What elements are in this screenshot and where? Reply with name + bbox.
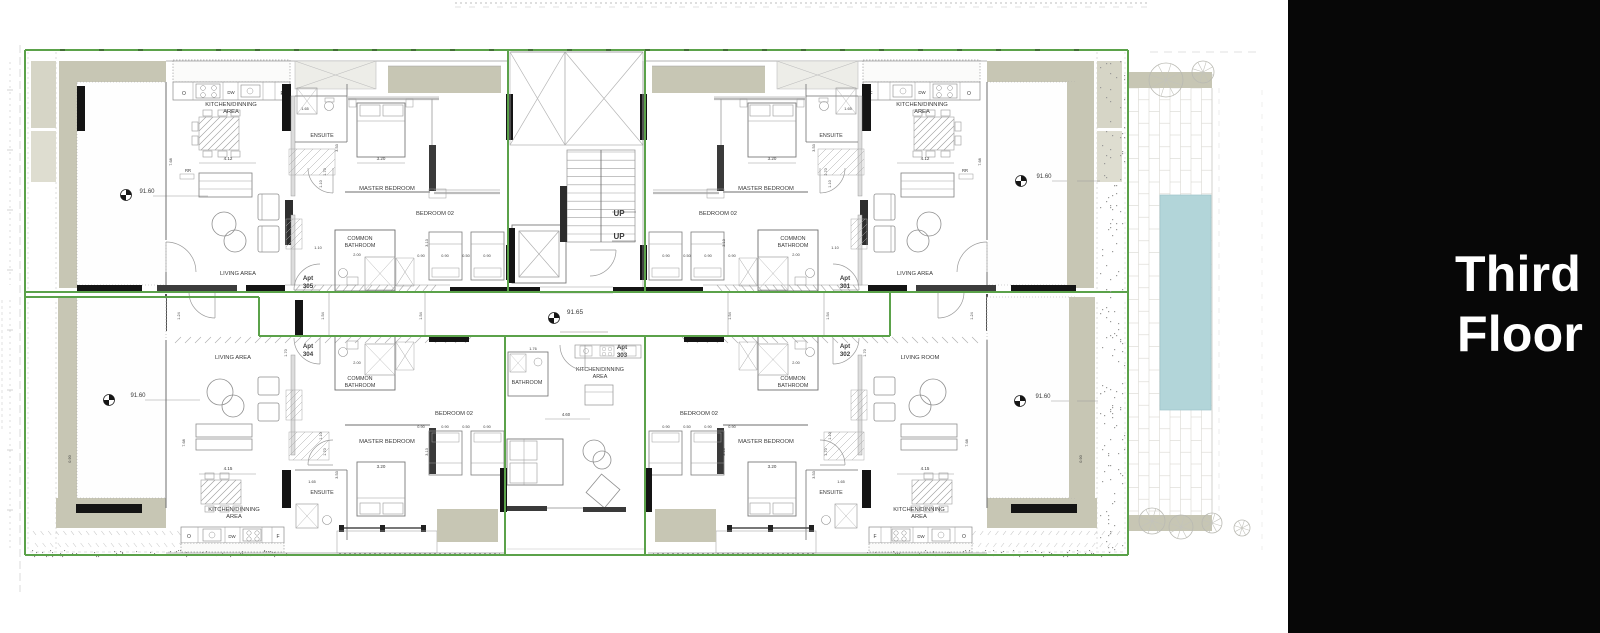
svg-text:COMMON: COMMON <box>780 376 805 382</box>
svg-text:BEDROOM 02: BEDROOM 02 <box>699 211 737 217</box>
svg-text:3.53: 3.53 <box>812 144 816 151</box>
svg-text:1.65: 1.65 <box>308 480 315 484</box>
svg-text:BEDROOM 02: BEDROOM 02 <box>435 411 473 417</box>
svg-text:RR: RR <box>962 168 968 173</box>
svg-text:91.60: 91.60 <box>1035 394 1051 400</box>
svg-text:4.12: 4.12 <box>921 156 930 161</box>
svg-text:KITCHEN/DINNING: KITCHEN/DINNING <box>893 507 945 513</box>
svg-text:4.12: 4.12 <box>224 156 233 161</box>
svg-text:3.53: 3.53 <box>335 144 339 151</box>
svg-text:1.10: 1.10 <box>319 432 323 439</box>
svg-text:ENSUITE: ENSUITE <box>819 133 843 139</box>
svg-text:1.54: 1.54 <box>321 312 325 319</box>
svg-text:BATHROOM: BATHROOM <box>778 243 809 249</box>
svg-text:Apt: Apt <box>840 343 850 350</box>
svg-text:304: 304 <box>303 351 314 358</box>
svg-text:0.50: 0.50 <box>462 254 469 258</box>
svg-text:ENSUITE: ENSUITE <box>310 133 334 139</box>
svg-text:301: 301 <box>840 283 851 290</box>
svg-text:BEDROOM 02: BEDROOM 02 <box>680 411 718 417</box>
svg-text:1.70: 1.70 <box>284 349 288 356</box>
svg-text:0.50: 0.50 <box>683 254 690 258</box>
svg-text:91.65: 91.65 <box>567 309 584 316</box>
svg-text:1.10: 1.10 <box>828 432 832 439</box>
svg-text:COMMON: COMMON <box>780 236 805 242</box>
svg-text:0.90: 0.90 <box>728 425 735 429</box>
svg-text:1.65: 1.65 <box>844 107 851 111</box>
svg-text:COMMON: COMMON <box>347 376 372 382</box>
svg-text:Floor: Floor <box>1457 306 1583 362</box>
svg-text:3.20: 3.20 <box>377 156 386 161</box>
svg-text:91.60: 91.60 <box>130 393 146 399</box>
svg-text:3.13: 3.13 <box>722 448 726 455</box>
svg-text:1.54: 1.54 <box>826 312 830 319</box>
svg-text:1.10: 1.10 <box>831 246 838 250</box>
svg-text:3.20: 3.20 <box>377 464 386 469</box>
svg-text:0.90: 0.90 <box>662 254 669 258</box>
svg-text:1.65: 1.65 <box>301 107 308 111</box>
svg-text:KITCHEN/DINNING: KITCHEN/DINNING <box>205 102 257 108</box>
svg-text:2.00: 2.00 <box>792 253 799 257</box>
svg-text:91.60: 91.60 <box>139 189 155 195</box>
svg-text:O: O <box>182 91 186 97</box>
svg-text:Third: Third <box>1455 246 1581 302</box>
svg-text:302: 302 <box>840 351 851 358</box>
svg-text:3.53: 3.53 <box>335 471 339 478</box>
svg-text:3.53: 3.53 <box>812 471 816 478</box>
svg-text:3.20: 3.20 <box>768 464 777 469</box>
svg-text:4.60: 4.60 <box>562 412 571 417</box>
svg-text:1.10: 1.10 <box>314 246 321 250</box>
svg-text:RR: RR <box>185 168 191 173</box>
svg-text:1.70: 1.70 <box>824 168 828 175</box>
svg-text:1.76: 1.76 <box>529 347 536 351</box>
svg-text:BATHROOM: BATHROOM <box>345 383 376 389</box>
svg-text:F: F <box>873 534 876 540</box>
svg-text:1.10: 1.10 <box>319 180 323 187</box>
svg-text:1.70: 1.70 <box>863 349 867 356</box>
svg-text:1.54: 1.54 <box>728 312 732 319</box>
svg-text:KITCHEN/DINNING: KITCHEN/DINNING <box>896 102 948 108</box>
svg-text:0.90: 0.90 <box>441 254 448 258</box>
svg-text:MASTER BEDROOM: MASTER BEDROOM <box>359 186 415 192</box>
svg-text:0.90: 0.90 <box>483 254 490 258</box>
svg-text:MASTER BEDROOM: MASTER BEDROOM <box>738 186 794 192</box>
svg-text:AREA: AREA <box>226 514 242 520</box>
svg-text:DW: DW <box>228 534 236 539</box>
svg-text:0.90: 0.90 <box>441 425 448 429</box>
svg-text:2.00: 2.00 <box>353 253 360 257</box>
svg-text:LIVING AREA: LIVING AREA <box>220 271 256 277</box>
svg-text:BEDROOM 02: BEDROOM 02 <box>416 211 454 217</box>
svg-text:MASTER BEDROOM: MASTER BEDROOM <box>359 439 415 445</box>
svg-text:0.90: 0.90 <box>728 254 735 258</box>
svg-text:UP: UP <box>613 209 625 218</box>
svg-text:ENSUITE: ENSUITE <box>819 490 843 496</box>
svg-text:91.60: 91.60 <box>1036 174 1052 180</box>
svg-text:UP: UP <box>613 232 625 241</box>
svg-text:LIVING ROOM: LIVING ROOM <box>901 355 940 361</box>
svg-text:BATHROOM: BATHROOM <box>778 383 809 389</box>
svg-text:7.68: 7.68 <box>182 439 186 446</box>
svg-text:7.68: 7.68 <box>978 158 982 165</box>
svg-text:0.90: 0.90 <box>417 425 424 429</box>
svg-text:1.24: 1.24 <box>970 312 974 319</box>
svg-text:1.65: 1.65 <box>837 480 844 484</box>
svg-text:ENSUITE: ENSUITE <box>310 490 334 496</box>
svg-text:0.90: 0.90 <box>704 425 711 429</box>
svg-text:4.15: 4.15 <box>224 466 233 471</box>
svg-text:AREA: AREA <box>911 514 927 520</box>
svg-text:3.13: 3.13 <box>722 239 726 246</box>
svg-text:BATHROOM: BATHROOM <box>345 243 376 249</box>
svg-text:MASTER BEDROOM: MASTER BEDROOM <box>738 439 794 445</box>
svg-text:Apt: Apt <box>840 275 850 282</box>
svg-text:LIVING AREA: LIVING AREA <box>215 355 251 361</box>
svg-text:0.90: 0.90 <box>704 254 711 258</box>
svg-text:2.00: 2.00 <box>792 361 799 365</box>
svg-text:BATHROOM: BATHROOM <box>512 380 543 386</box>
svg-text:F: F <box>276 534 279 540</box>
svg-text:3.13: 3.13 <box>425 239 429 246</box>
svg-text:1.70: 1.70 <box>323 448 327 455</box>
svg-text:LIVING AREA: LIVING AREA <box>897 271 933 277</box>
svg-text:4.15: 4.15 <box>921 466 930 471</box>
svg-text:AREA: AREA <box>593 374 608 380</box>
svg-text:3.20: 3.20 <box>768 156 777 161</box>
svg-text:DW: DW <box>227 90 235 95</box>
svg-text:0.50: 0.50 <box>462 425 469 429</box>
svg-text:0.90: 0.90 <box>483 425 490 429</box>
svg-text:1.54: 1.54 <box>419 312 423 319</box>
svg-text:0.90: 0.90 <box>662 425 669 429</box>
svg-text:O: O <box>962 534 966 540</box>
svg-text:O: O <box>187 534 191 540</box>
svg-text:0.90: 0.90 <box>417 254 424 258</box>
svg-text:1.24: 1.24 <box>177 312 181 319</box>
svg-text:DW: DW <box>918 90 926 95</box>
svg-text:305: 305 <box>303 283 314 290</box>
svg-text:7.68: 7.68 <box>169 158 173 165</box>
svg-text:1.10: 1.10 <box>828 180 832 187</box>
svg-text:1.70: 1.70 <box>323 168 327 175</box>
svg-text:2.00: 2.00 <box>353 361 360 365</box>
svg-text:KITCHEN/DINNING: KITCHEN/DINNING <box>208 507 260 513</box>
svg-text:1.70: 1.70 <box>824 448 828 455</box>
svg-text:7.68: 7.68 <box>965 439 969 446</box>
svg-text:0.50: 0.50 <box>683 425 690 429</box>
svg-text:0.90: 0.90 <box>1079 455 1083 462</box>
svg-text:DW: DW <box>917 534 925 539</box>
svg-text:Apt: Apt <box>303 275 313 282</box>
svg-text:3.13: 3.13 <box>425 448 429 455</box>
svg-text:Apt: Apt <box>303 343 313 350</box>
svg-text:COMMON: COMMON <box>347 236 372 242</box>
svg-text:0.90: 0.90 <box>68 455 72 462</box>
svg-text:O: O <box>967 91 971 97</box>
